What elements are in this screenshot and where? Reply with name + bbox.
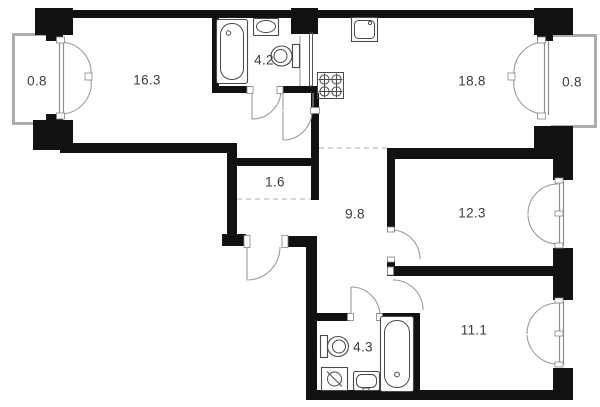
area-label-kitchen-living: 18.8 [458, 74, 485, 89]
area-label-bathroom-top: 4.2 [254, 53, 274, 68]
bathtub-icon [217, 20, 248, 84]
sink-icon-2 [354, 372, 380, 391]
toilet-icon-2 [321, 336, 349, 358]
kitchen-sink-icon [352, 18, 378, 42]
sink-icon [254, 19, 279, 36]
area-label-living-room: 16.3 [133, 73, 160, 88]
area-label-storage: 1.6 [265, 175, 285, 190]
toilet-icon [271, 45, 300, 68]
washing-machine-icon [322, 368, 348, 391]
area-label-balcony-right: 0.8 [562, 75, 582, 90]
floor-plan-drawing [0, 0, 600, 407]
area-label-bedroom-bottom: 11.1 [461, 323, 487, 338]
area-label-hallway: 9.8 [345, 207, 365, 222]
walls [33, 8, 573, 400]
area-label-balcony-left: 0.8 [27, 74, 47, 89]
bathtub-icon-2 [381, 317, 414, 392]
area-label-bedroom-right: 12.3 [458, 206, 485, 221]
floor-plan: 0.8 16.3 4.2 18.8 0.8 1.6 9.8 12.3 4.3 1… [0, 0, 600, 407]
stove-icon [318, 73, 344, 99]
area-label-bathroom-bottom: 4.3 [353, 340, 373, 355]
